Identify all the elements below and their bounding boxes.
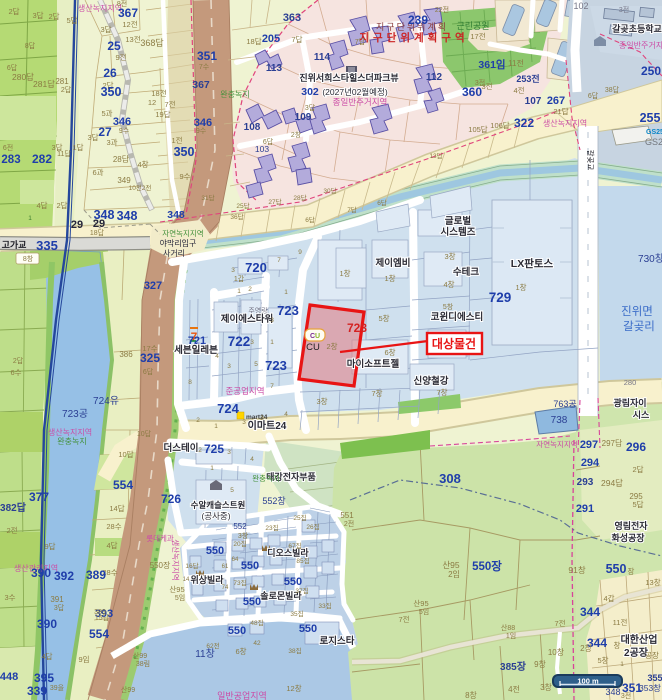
svg-text:12창: 12창	[286, 684, 301, 693]
svg-text:3: 3	[227, 449, 231, 456]
svg-text:11전: 11전	[613, 617, 628, 627]
svg-text:(2027년02월예정): (2027년02월예정)	[322, 87, 387, 97]
svg-text:738: 738	[551, 415, 568, 426]
svg-text:7전: 7전	[398, 614, 409, 624]
svg-text:18전: 18전	[151, 88, 166, 98]
svg-text:37집: 37집	[295, 587, 308, 595]
svg-text:3창: 3창	[238, 532, 249, 540]
svg-text:551: 551	[340, 511, 354, 520]
svg-text:389: 389	[86, 568, 106, 582]
svg-text:109: 109	[295, 112, 312, 123]
svg-text:280: 280	[624, 378, 637, 387]
svg-text:85집: 85집	[296, 557, 309, 565]
svg-text:3: 3	[231, 267, 235, 274]
svg-text:3답: 3답	[100, 24, 111, 34]
svg-text:갈곶초등학교: 갈곶초등학교	[612, 23, 662, 34]
svg-text:2창: 2창	[580, 644, 592, 653]
svg-text:4답: 4답	[106, 540, 117, 550]
svg-text:(공사중): (공사중)	[201, 511, 230, 521]
svg-text:9수: 9수	[119, 127, 130, 135]
svg-text:28답: 28답	[113, 154, 130, 164]
svg-text:9답: 9답	[44, 541, 55, 551]
svg-text:갈곶교: 갈곶교	[586, 150, 595, 171]
svg-text:30답: 30답	[323, 187, 336, 195]
svg-text:390: 390	[31, 566, 51, 580]
svg-text:361임: 361임	[478, 58, 505, 71]
svg-text:363: 363	[283, 12, 301, 24]
svg-text:4창: 4창	[137, 160, 148, 169]
svg-text:392: 392	[54, 569, 74, 583]
svg-text:367: 367	[118, 6, 138, 20]
svg-text:67집: 67집	[288, 542, 301, 550]
svg-text:2창: 2창	[326, 342, 337, 351]
svg-text:723: 723	[347, 321, 367, 335]
svg-text:9수: 9수	[196, 127, 207, 135]
svg-text:3: 3	[270, 317, 274, 324]
svg-text:2답: 2답	[56, 200, 67, 210]
svg-text:신양철강: 신양철강	[414, 375, 449, 387]
svg-text:73집: 73집	[233, 579, 246, 587]
svg-text:3답: 3답	[54, 603, 65, 612]
svg-text:253전: 253전	[516, 73, 539, 84]
svg-text:550장: 550장	[472, 559, 502, 573]
svg-text:mart24: mart24	[246, 414, 268, 421]
svg-text:7전: 7전	[164, 99, 175, 109]
svg-text:시스템즈: 시스템즈	[441, 226, 476, 238]
svg-text:5창: 5창	[443, 303, 454, 311]
svg-text:296: 296	[626, 440, 646, 454]
svg-text:1답: 1답	[72, 142, 83, 152]
svg-text:9전: 9전	[115, 52, 126, 62]
svg-text:2: 2	[198, 447, 202, 454]
svg-text:38림: 38림	[136, 660, 150, 668]
svg-text:4창: 4창	[443, 280, 454, 289]
svg-text:지구단위계획구역: 지구단위계획구역	[359, 31, 468, 44]
svg-text:9창: 9창	[534, 660, 546, 669]
svg-text:위상빌라: 위상빌라	[190, 574, 224, 585]
svg-text:13답: 13답	[429, 152, 442, 160]
svg-text:4: 4	[250, 456, 254, 463]
svg-text:4갑: 4갑	[603, 594, 614, 603]
svg-text:17수: 17수	[142, 344, 157, 353]
svg-text:세븐일레븐: 세븐일레븐	[174, 344, 218, 356]
svg-text:17전: 17전	[470, 31, 485, 41]
svg-text:335: 335	[36, 238, 58, 253]
svg-text:12전: 12전	[122, 19, 137, 29]
svg-text:5창: 5창	[597, 656, 608, 665]
svg-text:7수: 7수	[199, 63, 210, 71]
svg-text:1창: 1창	[339, 269, 350, 278]
svg-text:사거리: 사거리	[163, 249, 185, 258]
svg-text:550: 550	[228, 625, 246, 637]
svg-text:대한산업: 대한산업	[621, 633, 658, 646]
svg-text:진위서희스타힐스더파크뷰: 진위서희스타힐스더파크뷰	[299, 72, 398, 83]
svg-text:297: 297	[580, 439, 598, 451]
svg-text:39을: 39을	[50, 684, 65, 692]
svg-text:1창: 1창	[384, 274, 395, 283]
svg-text:107: 107	[525, 96, 542, 107]
svg-text:7: 7	[270, 383, 274, 390]
svg-text:대상물건: 대상물건	[432, 336, 476, 351]
svg-text:294답: 294답	[601, 478, 623, 488]
svg-text:산95: 산95	[169, 584, 184, 594]
svg-text:386: 386	[119, 350, 133, 359]
svg-text:4: 4	[215, 353, 219, 360]
svg-text:723: 723	[277, 303, 299, 318]
svg-text:100 m: 100 m	[577, 677, 599, 686]
svg-text:진위면: 진위면	[621, 305, 653, 318]
svg-text:25: 25	[107, 39, 121, 53]
svg-text:3답: 3답	[305, 103, 316, 112]
svg-text:367: 367	[192, 79, 210, 91]
svg-text:7창: 7창	[436, 388, 447, 397]
svg-text:723: 723	[265, 358, 287, 373]
svg-text:이마트24: 이마트24	[248, 419, 287, 432]
svg-text:생산녹지지역: 생산녹지지역	[78, 3, 122, 13]
svg-text:7창: 7창	[371, 389, 382, 398]
svg-text:14답: 14답	[109, 503, 124, 513]
svg-text:산95: 산95	[413, 598, 428, 608]
svg-text:2답: 2답	[48, 11, 59, 21]
svg-text:105답: 105답	[468, 124, 488, 134]
svg-text:화성공장: 화성공장	[611, 532, 645, 543]
svg-text:5: 5	[230, 487, 234, 494]
svg-text:205: 205	[262, 33, 280, 45]
svg-text:8창: 8창	[23, 255, 34, 263]
svg-text:3전: 3전	[619, 5, 629, 14]
svg-text:8답: 8답	[25, 41, 36, 50]
svg-text:42: 42	[253, 640, 261, 647]
svg-text:10전2전: 10전2전	[129, 183, 152, 192]
svg-text:13전: 13전	[125, 34, 140, 44]
svg-text:2전: 2전	[6, 525, 17, 535]
svg-text:3: 3	[250, 339, 254, 346]
svg-text:장: 장	[628, 566, 635, 576]
svg-text:10답: 10답	[137, 429, 152, 438]
svg-text:6창: 6창	[235, 647, 246, 656]
svg-text:348: 348	[94, 208, 115, 222]
svg-text:554: 554	[113, 478, 133, 492]
svg-text:4답: 4답	[36, 200, 47, 210]
svg-text:2답: 2답	[13, 356, 24, 365]
svg-text:2: 2	[248, 286, 252, 293]
svg-text:395: 395	[34, 671, 54, 685]
svg-text:294: 294	[581, 457, 600, 469]
svg-text:8: 8	[188, 379, 192, 386]
svg-text:11전: 11전	[508, 58, 524, 68]
svg-text:550: 550	[241, 560, 259, 572]
svg-text:382답: 382답	[0, 502, 27, 514]
svg-text:6답: 6답	[588, 91, 599, 100]
svg-text:생산녹지지역: 생산녹지지역	[48, 427, 92, 437]
svg-text:7전: 7전	[554, 618, 565, 628]
svg-text:13창: 13창	[645, 578, 660, 587]
svg-text:391: 391	[50, 595, 64, 604]
svg-text:350: 350	[101, 85, 122, 99]
svg-text:355: 355	[647, 673, 662, 683]
svg-text:LX판토스: LX판토스	[511, 257, 554, 270]
svg-text:322: 322	[514, 116, 534, 130]
svg-text:28수: 28수	[106, 522, 121, 531]
svg-text:26집: 26집	[306, 523, 319, 531]
svg-text:29: 29	[71, 219, 83, 231]
svg-text:수테크: 수테크	[453, 266, 479, 278]
svg-text:74: 74	[222, 585, 229, 591]
svg-text:1: 1	[214, 423, 218, 430]
svg-text:6답: 6답	[7, 63, 18, 72]
svg-text:18답: 18답	[246, 36, 261, 46]
svg-text:27: 27	[98, 125, 112, 139]
svg-text:4답: 4답	[41, 651, 52, 661]
svg-text:3과: 3과	[106, 138, 117, 147]
svg-text:64: 64	[232, 557, 239, 563]
svg-text:108: 108	[244, 122, 261, 133]
svg-text:6답: 6답	[143, 367, 154, 376]
svg-text:550: 550	[243, 596, 261, 608]
svg-text:48집: 48집	[250, 619, 263, 627]
svg-text:360: 360	[462, 85, 482, 99]
svg-text:1: 1	[270, 339, 274, 346]
svg-text:25집: 25집	[293, 514, 306, 522]
svg-text:102: 102	[573, 1, 588, 11]
svg-text:385장: 385장	[500, 660, 527, 673]
svg-text:325: 325	[140, 351, 160, 365]
svg-text:종일반주거지역: 종일반주거지역	[333, 97, 388, 107]
svg-text:18답: 18답	[90, 228, 105, 237]
svg-text:61: 61	[222, 564, 229, 570]
svg-text:제이엠비: 제이엠비	[376, 257, 411, 269]
svg-text:2답: 2답	[632, 464, 643, 474]
svg-text:239: 239	[408, 13, 428, 27]
svg-text:38답: 38답	[605, 85, 620, 94]
svg-text:91창: 91창	[568, 565, 585, 575]
svg-text:308: 308	[439, 471, 461, 486]
svg-text:38집: 38집	[288, 647, 301, 655]
svg-text:3답: 3답	[32, 10, 43, 20]
svg-text:297답: 297답	[602, 438, 623, 448]
svg-text:9수: 9수	[179, 172, 190, 181]
svg-text:산88: 산88	[501, 623, 515, 632]
svg-text:353창: 353창	[639, 683, 661, 693]
svg-text:550: 550	[606, 562, 627, 576]
svg-text:롯데케과: 롯데케과	[146, 534, 174, 543]
svg-text:550: 550	[206, 545, 224, 557]
svg-text:글로벌: 글로벌	[445, 215, 471, 227]
svg-text:255: 255	[640, 111, 661, 125]
svg-text:광림자이: 광림자이	[613, 397, 646, 408]
svg-text:7답: 7답	[347, 206, 357, 214]
svg-text:28답: 28답	[293, 194, 306, 202]
svg-text:763공: 763공	[553, 399, 576, 409]
svg-text:11창: 11창	[195, 648, 215, 660]
svg-text:1임: 1임	[506, 632, 516, 640]
svg-text:281답: 281답	[33, 79, 55, 89]
svg-text:344: 344	[580, 605, 600, 619]
svg-text:448: 448	[0, 671, 18, 683]
svg-text:준공업지역: 준공업지역	[225, 386, 264, 396]
svg-text:6창: 6창	[384, 348, 395, 357]
svg-text:산99: 산99	[121, 685, 135, 694]
svg-text:33집: 33집	[318, 602, 331, 610]
svg-text:11답: 11답	[57, 149, 71, 158]
svg-text:35집: 35집	[290, 610, 303, 618]
svg-text:729: 729	[489, 290, 512, 305]
svg-text:113: 113	[266, 63, 283, 74]
svg-text:로지스타: 로지스타	[320, 635, 355, 647]
svg-text:2전: 2전	[344, 519, 354, 528]
svg-text:346: 346	[113, 116, 131, 128]
svg-text:725: 725	[204, 442, 224, 456]
svg-text:고가교: 고가교	[2, 239, 27, 250]
svg-text:3: 3	[242, 419, 246, 426]
svg-text:730창: 730창	[638, 253, 662, 265]
svg-text:4: 4	[284, 411, 288, 418]
svg-text:5: 5	[254, 361, 258, 368]
svg-text:27답: 27답	[268, 198, 281, 206]
svg-text:349: 349	[117, 176, 131, 185]
svg-text:시스: 시스	[633, 410, 650, 420]
svg-text:6수: 6수	[10, 368, 21, 377]
svg-text:14: 14	[183, 577, 190, 583]
svg-text:생산녹지지역: 생산녹지지역	[171, 539, 181, 580]
svg-text:7답: 7답	[291, 34, 302, 44]
svg-text:5임: 5임	[419, 608, 429, 616]
svg-text:722: 722	[228, 334, 251, 349]
svg-text:5창: 5창	[378, 314, 389, 323]
svg-text:12: 12	[148, 98, 156, 107]
svg-text:3답: 3답	[87, 132, 98, 142]
svg-text:완충녹지: 완충녹지	[57, 437, 86, 446]
svg-text:23집: 23집	[265, 524, 278, 532]
svg-text:공장: 공장	[645, 650, 659, 660]
svg-text:1: 1	[210, 465, 214, 472]
svg-text:283: 283	[1, 154, 20, 166]
svg-text:723공: 723공	[62, 408, 88, 420]
svg-text:3수: 3수	[4, 593, 15, 602]
svg-text:339: 339	[27, 684, 47, 698]
svg-text:완충녹지: 완충녹지	[220, 90, 249, 99]
svg-text:2답: 2답	[8, 6, 19, 16]
svg-text:더스테이: 더스테이	[164, 442, 199, 454]
svg-text:19답: 19답	[155, 109, 170, 119]
svg-text:282: 282	[32, 152, 52, 166]
svg-text:20집: 20집	[233, 540, 246, 548]
svg-text:16답: 16답	[185, 562, 198, 570]
svg-text:코윈디에스티: 코윈디에스티	[431, 311, 483, 323]
svg-text:36답: 36답	[230, 213, 243, 221]
svg-text:552창: 552창	[262, 496, 285, 506]
svg-text:산99: 산99	[133, 651, 147, 660]
svg-text:112: 112	[426, 72, 443, 83]
svg-text:327: 327	[144, 280, 162, 292]
svg-text:자연녹지지역: 자연녹지지역	[536, 439, 577, 449]
svg-text:25답: 25답	[236, 202, 249, 210]
svg-text:GS25: GS25	[645, 137, 662, 147]
svg-text:348: 348	[117, 209, 138, 223]
svg-text:552: 552	[233, 522, 247, 531]
svg-text:302: 302	[301, 86, 319, 98]
svg-text:CU: CU	[306, 342, 320, 353]
svg-text:영림전자: 영림전자	[614, 520, 648, 531]
svg-text:1: 1	[620, 661, 624, 668]
svg-text:281: 281	[55, 77, 69, 86]
svg-text:8창: 8창	[465, 691, 477, 700]
svg-text:자연녹지지역: 자연녹지지역	[162, 228, 203, 238]
svg-text:554: 554	[89, 627, 109, 641]
svg-text:103: 103	[255, 144, 269, 154]
svg-text:5임: 5임	[175, 594, 185, 602]
svg-text:2답: 2답	[61, 85, 72, 94]
svg-text:720: 720	[245, 260, 267, 275]
svg-text:3전: 3전	[621, 691, 631, 700]
svg-text:3창: 3창	[444, 252, 455, 261]
svg-text:2: 2	[260, 415, 264, 422]
svg-text:726: 726	[161, 492, 181, 506]
svg-text:5과: 5과	[101, 109, 112, 118]
svg-text:280답: 280답	[12, 72, 34, 82]
svg-text:351: 351	[197, 49, 217, 63]
svg-text:22전: 22전	[435, 5, 449, 14]
svg-text:114: 114	[314, 52, 331, 63]
svg-text:6과: 6과	[92, 168, 103, 177]
svg-text:7: 7	[277, 257, 281, 264]
svg-text:550: 550	[299, 623, 317, 635]
svg-text:2: 2	[196, 417, 200, 424]
svg-text:1갑: 1갑	[234, 275, 245, 283]
svg-text:완충녹지: 완충녹지	[252, 474, 280, 483]
svg-text:6답: 6답	[305, 216, 315, 224]
svg-text:마이소프트젤: 마이소프트젤	[347, 358, 400, 370]
svg-text:350: 350	[174, 145, 195, 159]
svg-text:250: 250	[641, 64, 661, 78]
svg-text:3창: 3창	[316, 397, 327, 406]
svg-text:5답: 5답	[66, 15, 77, 25]
svg-text:1전: 1전	[171, 135, 182, 145]
svg-text:생산녹지지역: 생산녹지지역	[543, 118, 587, 128]
svg-text:4전: 4전	[508, 684, 520, 694]
svg-text:제이에스타워: 제이에스타워	[221, 313, 273, 325]
svg-text:3: 3	[227, 363, 231, 370]
svg-text:일반공업지역: 일반공업지역	[217, 691, 267, 700]
svg-text:GS25: GS25	[646, 129, 662, 136]
svg-text:1: 1	[284, 289, 288, 296]
svg-text:348: 348	[167, 209, 185, 221]
svg-text:3창: 3창	[540, 683, 552, 692]
svg-text:267: 267	[547, 95, 565, 107]
svg-text:2임: 2임	[448, 570, 460, 579]
svg-text:창: 창	[614, 641, 621, 650]
svg-text:106답: 106답	[490, 120, 510, 130]
svg-text:1창: 1창	[515, 283, 526, 292]
svg-text:근린공원: 근린공원	[456, 21, 489, 31]
svg-text:4전: 4전	[513, 85, 524, 95]
svg-text:10창: 10창	[548, 648, 565, 657]
svg-text:수알캐슬스트원: 수알캐슬스트원	[191, 500, 246, 510]
svg-text:10답: 10답	[118, 449, 133, 459]
svg-text:야막리입구: 야막리입구	[160, 238, 197, 248]
svg-text:293: 293	[577, 477, 594, 488]
svg-text:31답: 31답	[201, 194, 214, 202]
svg-text:724유: 724유	[93, 395, 119, 407]
svg-text:377: 377	[29, 490, 49, 504]
svg-text:7답: 7답	[355, 37, 366, 46]
svg-text:291: 291	[576, 503, 594, 515]
svg-text:산95: 산95	[442, 560, 460, 570]
svg-text:348: 348	[605, 687, 620, 697]
svg-text:6답: 6답	[377, 199, 387, 207]
svg-text:550장: 550장	[150, 560, 171, 570]
svg-text:6전: 6전	[3, 143, 13, 152]
